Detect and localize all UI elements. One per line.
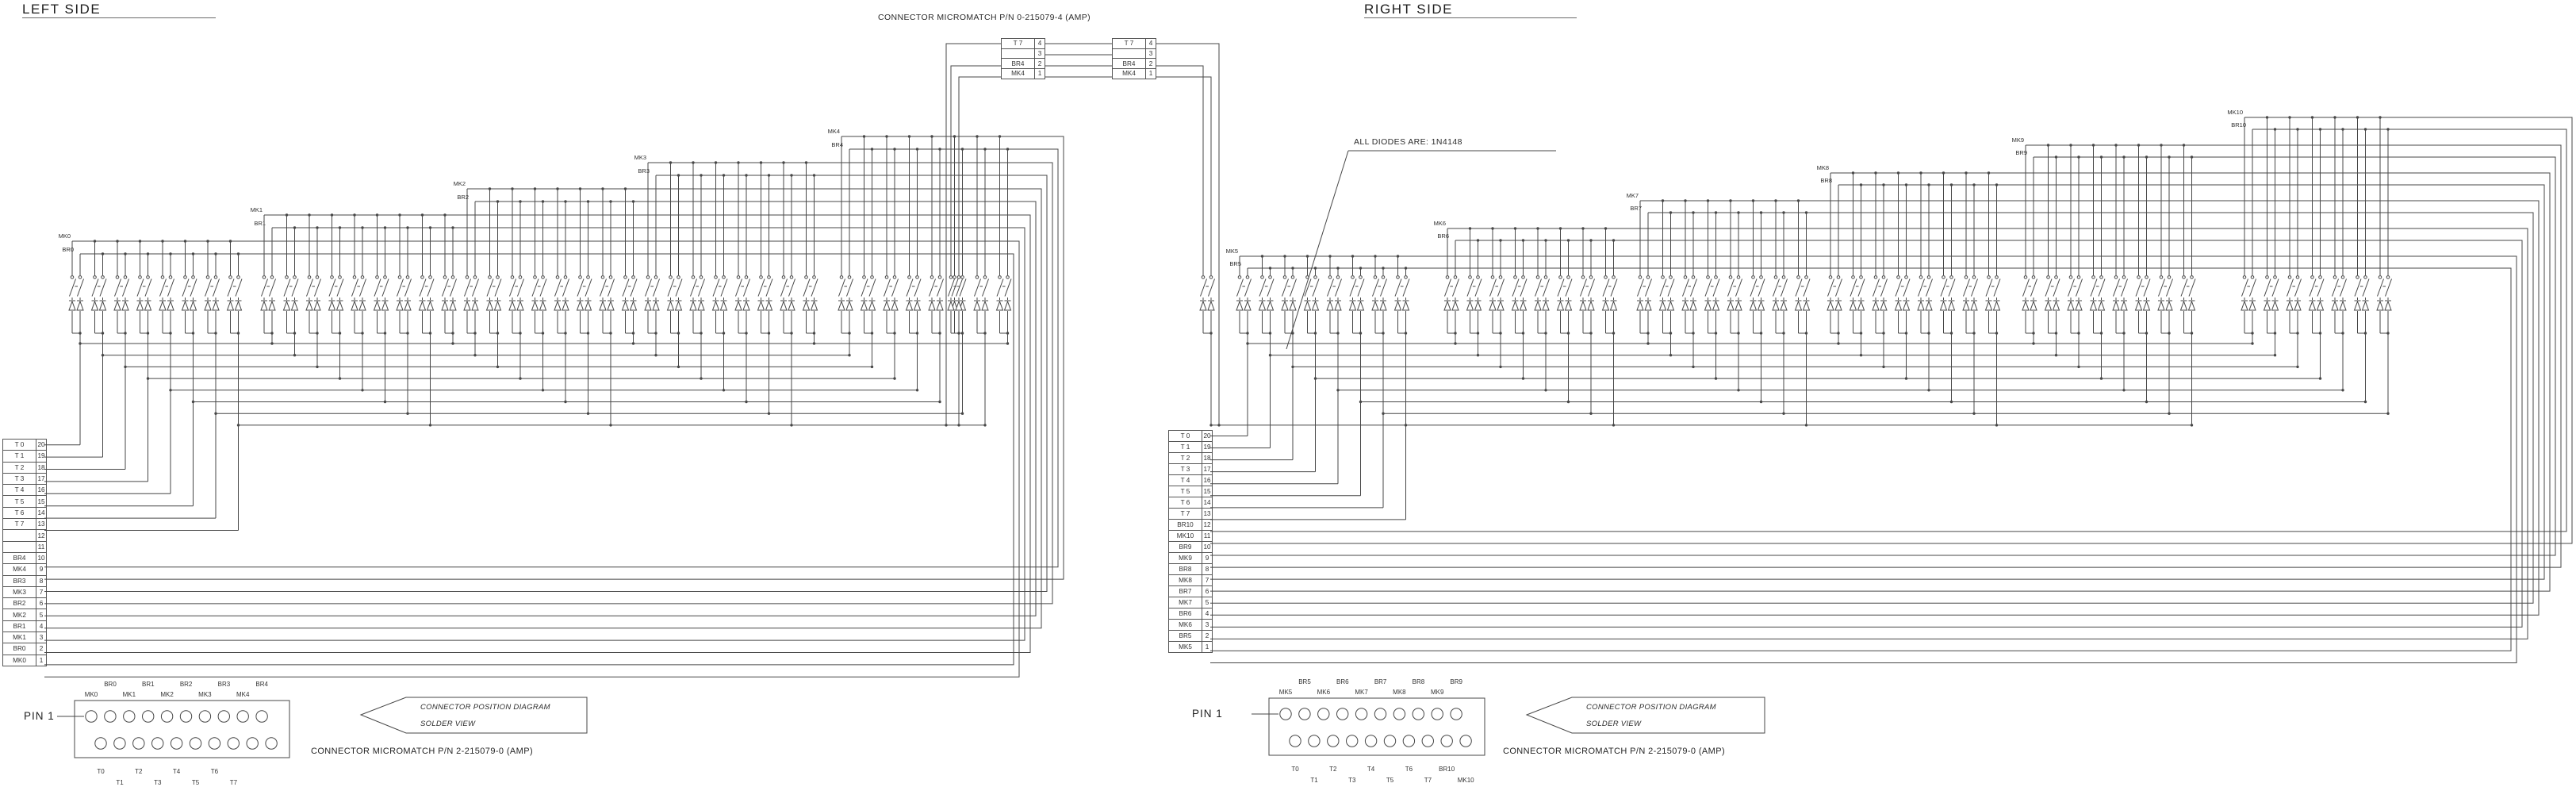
svg-text:MK5: MK5 [1226,248,1238,255]
posdiag-label: BR0 [104,681,117,688]
svg-text:MK2: MK2 [454,180,466,187]
key-unit [261,215,276,345]
key-unit [1603,227,1618,426]
key-unit [44,240,106,457]
key-unit [1210,255,1342,483]
key-unit [1660,199,1675,356]
svg-text:MK7: MK7 [1627,192,1639,199]
key-unit [1896,171,1911,380]
posdiag-label: T0 [97,768,104,775]
link-connector-wiring [945,44,1220,427]
posdiag-label: T6 [211,768,218,775]
posdiag-label: T1 [116,779,123,786]
left-matrix: MK4BR4MK3BR3MK2BR2MK1BR1MK0BR0 [44,128,1064,677]
key-unit [2181,144,2196,426]
svg-text:MK3: MK3 [634,154,646,161]
key-unit [2241,117,2256,345]
key-unit [577,187,592,415]
key-unit [306,213,321,368]
key-unit [758,161,773,415]
key-unit [284,213,299,356]
key-unit [1558,227,1573,403]
key-unit [645,163,660,356]
svg-text:MK10: MK10 [2227,109,2243,116]
key-unit [1850,171,1865,356]
left-position-diagram [57,701,289,758]
posdiag-label: BR9 [1450,678,1462,685]
posdiag-label: T5 [1386,777,1393,784]
key-unit [509,187,524,379]
key-unit [997,135,1012,344]
key-unit [907,135,922,391]
key-unit [690,161,705,380]
svg-text:MK4: MK4 [828,128,840,135]
key-unit [44,240,151,482]
right-matrix: MK10BR10MK9BR9MK8BR8MK7BR7MK6BR6MK5BR5 [1210,109,2572,662]
key-unit [2377,116,2392,415]
key-unit [1796,199,1811,426]
posdiag-label: T1 [1310,777,1317,784]
key-unit [1705,199,1720,379]
posdiag-label: T7 [1424,777,1432,784]
key-unit [2287,116,2302,368]
key-unit [1210,255,1409,520]
key-unit [487,187,502,368]
key-unit [668,161,683,368]
key-unit [1444,228,1459,345]
posdiag-label: T2 [135,768,142,775]
key-unit [44,240,129,469]
posdiag-label: MK0 [85,691,98,698]
callout-banner-left [361,697,587,733]
key-unit [948,276,963,427]
schematic-page: { "titles": { "left": "LEFT SIDE", "righ… [0,0,2576,787]
posdiag-label: BR10 [1439,766,1455,773]
key-unit [1827,173,1842,345]
posdiag-label: BR2 [180,681,193,688]
posdiag-label: BR5 [1298,678,1311,685]
key-unit [600,187,615,426]
posdiag-label: T4 [1367,766,1374,773]
key-unit [713,161,728,391]
posdiag-label: MK4 [236,691,249,698]
right-position-diagram [1252,698,1485,755]
posdiag-label: MK2 [160,691,173,698]
key-unit [861,135,876,368]
posdiag-label: T6 [1405,766,1413,773]
key-unit [1467,227,1482,356]
key-unit [554,187,569,403]
key-unit [838,136,853,356]
posdiag-label: T3 [1348,777,1355,784]
posdiag-label: T2 [1329,766,1336,773]
key-unit [351,213,366,391]
key-unit [2310,116,2325,380]
key-unit [1682,199,1697,368]
key-unit [1489,227,1505,368]
posdiag-label: MK3 [198,691,211,698]
key-unit [1773,199,1788,415]
key-unit [1210,255,1297,459]
posdiag-label: MK8 [1393,689,1405,696]
posdiag-label: MK9 [1431,689,1443,696]
posdiag-label: BR6 [1336,678,1349,685]
posdiag-label: T7 [230,779,237,786]
key-unit [420,213,435,426]
schematic-canvas: MK4BR4MK3BR3MK2BR2MK1BR1MK0BR0MK10BR10MK… [0,0,2576,787]
key-unit [1580,227,1595,415]
key-unit [2264,116,2279,356]
svg-text:MK0: MK0 [59,232,71,240]
key-unit [1200,276,1215,427]
posdiag-label: MK7 [1355,689,1367,696]
key-unit [1210,255,1319,471]
key-unit [2045,144,2060,356]
posdiag-label: BR8 [1413,678,1425,685]
key-unit [2136,144,2151,403]
key-unit [2022,145,2037,345]
key-unit [464,189,479,356]
svg-text:MK6: MK6 [1434,220,1446,227]
key-unit [1210,256,1252,436]
key-unit [442,213,457,344]
svg-text:MK9: MK9 [2012,136,2024,144]
key-unit [2091,144,2106,380]
key-unit [623,187,638,344]
posdiag-label: MK6 [1317,689,1330,696]
posdiag-label: MK10 [1458,777,1474,784]
key-unit [1941,171,1956,403]
key-unit [780,161,795,426]
posdiag-label: BR4 [255,681,268,688]
key-unit [2355,116,2370,403]
svg-text:MK8: MK8 [1817,164,1829,171]
key-unit [532,187,547,391]
posdiag-label: T5 [192,779,199,786]
callout-banner-right [1527,697,1765,733]
posdiag-label: T0 [1291,766,1298,773]
key-unit [1750,199,1765,403]
key-unit [974,135,989,426]
posdiag-label: T3 [154,779,161,786]
posdiag-label: MK1 [123,691,136,698]
posdiag-label: BR3 [218,681,231,688]
key-unit [374,213,389,403]
key-unit [44,241,84,445]
key-unit [1986,171,2001,426]
key-unit [1210,255,1274,447]
posdiag-label: BR1 [142,681,155,688]
posdiag-label: BR7 [1374,678,1387,685]
key-unit [397,213,412,415]
posdiag-label: MK5 [1279,689,1292,696]
posdiag-label: T4 [173,768,180,775]
svg-text:MK1: MK1 [251,206,263,213]
key-unit [1512,227,1528,380]
key-unit [2113,144,2128,391]
svg-text:BR10: BR10 [2231,121,2246,129]
key-unit [1637,201,1652,345]
key-unit [1918,171,1933,391]
